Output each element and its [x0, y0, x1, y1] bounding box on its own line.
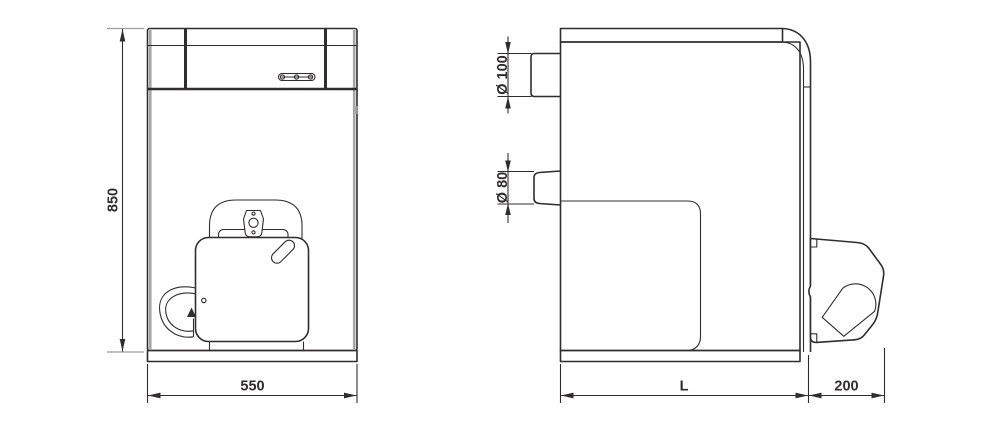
burner-pedestal: [210, 342, 304, 351]
height-arrow-top: [120, 29, 126, 42]
side-interior-panel-line: [561, 201, 701, 351]
control-indicator-slot: [279, 74, 316, 81]
side-view: Ø 100 Ø 80 L 200: [495, 29, 885, 404]
front-cowl-outer: [783, 29, 811, 353]
width-arrow-left: [148, 393, 161, 399]
boiler-dimension-drawing: 850 550: [0, 0, 1001, 427]
width-dimension-label: 550: [240, 379, 264, 395]
height-dimension: 850: [106, 29, 145, 353]
height-arrow-bottom: [120, 339, 126, 352]
depth-arrow-right: [796, 393, 809, 399]
door-hinge-mark: [356, 106, 359, 114]
depth-dimension-label: L: [680, 379, 689, 395]
side-top-strip: [561, 29, 783, 43]
projection-arrow-left: [809, 393, 822, 399]
front-base-plinth: [148, 351, 358, 362]
height-dimension-label: 850: [106, 188, 122, 212]
boiler-side-body: [531, 29, 811, 362]
burner-side-outline: [809, 239, 884, 343]
front-right-edge-shade: [353, 30, 356, 349]
projection-dimension-label: 200: [834, 379, 858, 395]
flue-diameter-dimension: Ø 100: [495, 37, 532, 114]
flue-dimension-label: Ø 100: [495, 55, 511, 95]
burner-mount-bracket: [244, 211, 264, 237]
burner-front: [160, 200, 309, 351]
hose-clamp: [187, 308, 196, 318]
burner-projection-dimension: 200: [809, 348, 885, 403]
burner-side: [809, 239, 884, 343]
outlet-dimension-label: Ø 80: [495, 172, 511, 203]
front-left-edge-shade: [149, 30, 152, 349]
flue-stub-100: [531, 54, 561, 97]
flue-arrow-top: [505, 42, 511, 54]
outlet-diameter-dimension: Ø 80: [495, 153, 534, 223]
depth-arrow-left: [561, 393, 574, 399]
burner-cover: [196, 238, 309, 342]
width-dimension: 550: [148, 364, 358, 403]
front-view: 850 550: [106, 29, 359, 404]
flue-arrow-bottom: [505, 97, 511, 109]
width-arrow-right: [344, 393, 357, 399]
side-body-outline: [561, 42, 801, 351]
outlet-arrow-top: [505, 161, 511, 173]
technical-drawing-canvas: 850 550: [0, 0, 1001, 427]
side-base-plinth: [561, 351, 801, 362]
projection-arrow-right: [872, 393, 885, 399]
outlet-arrow-bottom: [505, 204, 511, 216]
outlet-stub-80: [534, 171, 561, 205]
